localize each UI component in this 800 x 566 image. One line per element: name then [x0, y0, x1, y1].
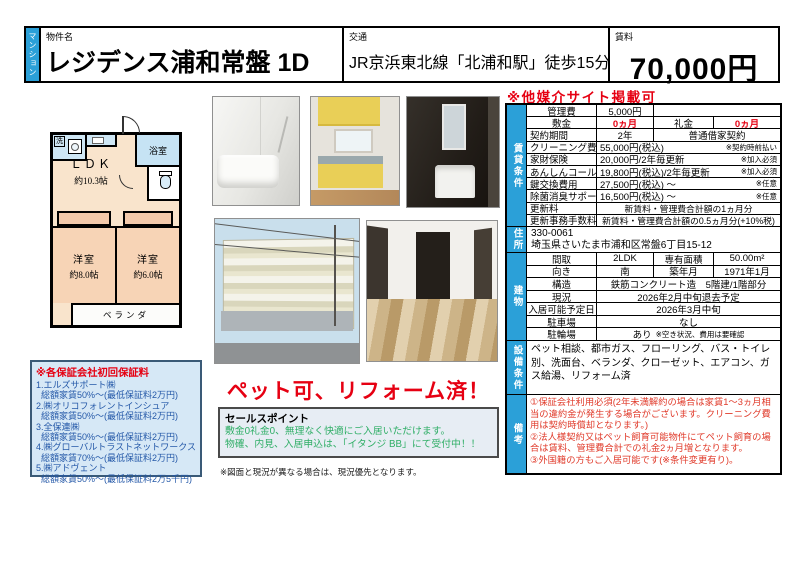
wash-label: 洗: [54, 136, 65, 147]
floorplan-kitchen-counter: [87, 135, 117, 147]
floorplan-closet-right: [123, 211, 173, 226]
row-label: クリーニング費用: [527, 142, 597, 153]
room2-size: 約6.0帖: [133, 268, 162, 281]
row-label: 駐車場: [527, 316, 597, 328]
row-value: 50.00m²: [714, 253, 780, 265]
row-value: 2LDK: [597, 253, 654, 265]
row-value: 南: [597, 266, 654, 278]
entry-door-arc-icon: [123, 116, 140, 133]
row-note: ※任意: [756, 191, 777, 202]
detail-panel: 賃貸条件 管理費 5,000円 敷金 0ヵ月 礼金 0ヵ月 契約期間 2年 普通…: [505, 103, 782, 475]
row-label: 駐輪場: [527, 328, 597, 340]
balcony-label: ベランダ: [103, 309, 149, 321]
sales-point-box: セールスポイント 敷金0礼金0、無理なく快適にご入居いただけます。 物確、内見、…: [218, 407, 499, 458]
row-label: 向き: [527, 266, 597, 278]
deposit-value: 0ヵ月: [597, 117, 654, 128]
property-name-label: 物件名: [46, 30, 337, 43]
row-value: 16,500円(税込) ～: [600, 189, 676, 203]
row-label: 除菌消臭サポート: [527, 190, 597, 201]
row-note: ※空き状況、費用は要確認: [656, 329, 745, 340]
kitchen-window: [334, 129, 373, 153]
floorplan-closet-left: [57, 211, 111, 226]
section-rental-terms: 賃貸条件 管理費 5,000円 敷金 0ヵ月 礼金 0ヵ月 契約期間 2年 普通…: [507, 105, 780, 227]
pet-ok-note: ペット可、リフォーム済！: [218, 375, 499, 405]
room1-label: 洋室: [73, 251, 95, 266]
property-name-cell: 物件名 レジデンス浦和常盤 1D: [41, 28, 344, 81]
room1-size: 約8.0帖: [69, 268, 98, 281]
ldk-size: 約10.3帖: [63, 174, 119, 187]
row-note: ※任意: [756, 178, 777, 189]
washer-drum-icon: [71, 143, 79, 151]
guarantee-company: 4.㈱グローバルトラストネットワークス: [36, 442, 196, 452]
photo-bathroom: [212, 96, 300, 206]
guarantee-company: 5.㈱アドヴェント: [36, 463, 196, 473]
row-value: 5,000円: [597, 105, 654, 116]
table-row: 更新料 新賃料・管理費合計額の1ヵ月分: [527, 203, 780, 215]
photo-washbasin: [406, 96, 500, 208]
section-remarks: 備考 ①保証会社利用必須(2年未満解約の場合は家賃1～3ヵ月相当の違約金が発生す…: [507, 395, 780, 473]
floorplan-room2: 洋室 約6.0帖: [117, 226, 179, 303]
remark-line: ①保証会社利用必須(2年未満解約の場合は家賃1～3ヵ月相当の違約金が発生する場合…: [530, 397, 777, 432]
table-row: 入居可能予定日 2026年3月中旬: [527, 303, 780, 316]
road: [215, 343, 359, 363]
interior-doorway: [416, 232, 450, 305]
row-label: 入居可能予定日: [527, 303, 597, 315]
sink-icon: [92, 137, 104, 144]
washbasin-vanity: [435, 165, 475, 198]
room2-label: 洋室: [137, 251, 159, 266]
table-row: 構造 鉄筋コンクリート造 5階建/1階部分: [527, 278, 780, 291]
guarantee-fee: 総額家賃50%～(最低保証料2万5千円): [36, 474, 196, 484]
address-text: 埼玉県さいたま市浦和区常盤6丁目15-12: [531, 240, 776, 252]
row-label: 家財保険: [527, 154, 597, 165]
rent-label: 賃料: [615, 30, 773, 43]
remarks-label: 備考: [507, 395, 527, 473]
kitchen-counter: [318, 156, 383, 164]
table-row: 管理費 5,000円: [527, 105, 780, 117]
property-name: レジデンス浦和常盤 1D: [46, 43, 337, 79]
row-label: 更新料: [527, 203, 597, 214]
row-label: 間取: [527, 253, 597, 265]
transport-cell: 交通 JR京浜東北線「北浦和駅」徒歩15分: [344, 28, 610, 81]
guarantee-company: 3.全保連㈱: [36, 422, 196, 432]
sales-point-line: 物確、内見、入居申込は、「イタンジ BB」にて受付中！！: [225, 439, 492, 452]
row-label: 現況: [527, 291, 597, 303]
equipment-text: ペット相談、都市ガス、フローリング、バス・トイレ別、洗面台、ベランダ、クローゼッ…: [527, 341, 780, 386]
row-note: ※加入必須: [741, 166, 777, 177]
shower-hose: [277, 117, 288, 153]
kitchen-floor: [311, 190, 399, 205]
entry-door-leaf: [122, 116, 124, 134]
floorplan-disclaimer: ※図面と現況が異なる場合は、現況優先となります。: [220, 466, 422, 478]
floorplan: 洗 浴室 ＬＤＫ 約10.3帖 洋室 約8.0帖 洋室 約6.0帖 ベランダ: [50, 132, 182, 328]
guarantee-fee: 総額家賃50%～(最低保証料2万円): [36, 432, 196, 442]
row-empty: [654, 105, 780, 116]
photo-room-interior: [366, 220, 498, 362]
guarantee-fee: 総額家賃50%～(最低保証料2万円): [36, 411, 196, 421]
row-label: 鍵交換費用: [527, 178, 597, 189]
washer-icon: [68, 139, 82, 154]
row-note: ※契約時前払い: [726, 142, 777, 153]
header: マンション 物件名 レジデンス浦和常盤 1D 交通 JR京浜東北線「北浦和駅」徒…: [24, 26, 780, 83]
sales-point-title: セールスポイント: [225, 411, 492, 426]
guarantee-company-box: ※各保証会社初回保証料 1.エルズサポート㈱ 総額家賃50%～(最低保証料2万円…: [30, 360, 202, 477]
row-value: 鉄筋コンクリート造 5階建/1階部分: [597, 278, 780, 290]
row-value: 2026年2月中旬退去予定: [597, 291, 780, 303]
remark-line: ②法人様契約又はペット飼育可能物件にてペット飼育の場合は賃料、管理費合計での礼金…: [530, 432, 777, 455]
row-value: なし: [597, 316, 780, 328]
property-flyer: マンション 物件名 レジデンス浦和常盤 1D 交通 JR京浜東北線「北浦和駅」徒…: [0, 0, 800, 566]
row-note: ※加入必須: [741, 154, 777, 165]
row-label: 更新事務手数料: [527, 215, 597, 226]
table-row: 更新事務手数料 新賃料・管理費合計額の0.5ヵ月分(+10%税): [527, 215, 780, 226]
row-label: 構造: [527, 278, 597, 290]
key-money-value: 0ヵ月: [714, 117, 780, 128]
table-row: 駐輪場 あり ※空き状況、費用は要確認: [527, 328, 780, 340]
row-label: 礼金: [654, 117, 714, 128]
row-value: あり: [633, 328, 652, 340]
kitchen-upper-cabinets: [318, 97, 380, 126]
photo-building-exterior: [214, 218, 360, 364]
washbasin-mirror: [442, 104, 466, 150]
interior-wood-floor: [367, 299, 497, 361]
guarantee-title: ※各保証会社初回保証料: [36, 364, 196, 379]
floorplan-balcony: ベランダ: [71, 303, 179, 325]
washbasin-wall: [488, 97, 499, 207]
row-label: あんしんコール24: [527, 166, 597, 177]
transport-label: 交通: [349, 30, 603, 43]
photo-kitchen: [310, 96, 400, 206]
interior-door-arc-icon: [119, 175, 133, 189]
building-label: 建物: [507, 253, 527, 340]
utility-pole: [334, 225, 336, 326]
floorplan-bathroom: 浴室: [135, 135, 179, 167]
row-label: 契約期間: [527, 129, 597, 140]
row-label: 築年月: [654, 266, 714, 278]
rent-value: 70,000円: [615, 44, 773, 88]
floorplan-toilet: [147, 167, 179, 201]
table-row: 間取 2LDK 専有面積 50.00m²: [527, 253, 780, 266]
guarantee-fee: 総額家賃70%～(最低保証料2万円): [36, 453, 196, 463]
table-row: 現況 2026年2月中旬退去予定: [527, 291, 780, 304]
postal-code: 330-0061: [531, 228, 776, 240]
address-label: 住所: [507, 227, 527, 252]
row-value: 普通借家契約: [654, 129, 780, 140]
section-address: 住所 330-0061 埼玉県さいたま市浦和区常盤6丁目15-12: [507, 227, 780, 253]
row-label: 管理費: [527, 105, 597, 116]
row-label: 専有面積: [654, 253, 714, 265]
row-label: 敷金: [527, 117, 597, 128]
rental-terms-label: 賃貸条件: [507, 105, 527, 226]
floorplan-ldk: ＬＤＫ 約10.3帖: [63, 155, 119, 187]
section-equipment: 設備条件 ペット相談、都市ガス、フローリング、バス・トイレ別、洗面台、ベランダ、…: [507, 341, 780, 395]
section-building: 建物 間取 2LDK 専有面積 50.00m² 向き 南 築年月 1971年1月…: [507, 253, 780, 341]
equipment-label: 設備条件: [507, 341, 527, 394]
table-row: 駐車場 なし: [527, 316, 780, 329]
table-row: 向き 南 築年月 1971年1月: [527, 266, 780, 279]
floorplan-room1: 洋室 約8.0帖: [53, 226, 117, 303]
ldk-label: ＬＤＫ: [63, 155, 119, 172]
row-value: 2026年3月中旬: [597, 303, 780, 315]
category-tag: マンション: [26, 28, 41, 81]
interior-door-right: [474, 228, 492, 309]
sales-point-line: 敷金0礼金0、無理なく快適にご入居いただけます。: [225, 426, 492, 439]
transport-value: JR京浜東北線「北浦和駅」徒歩15分: [349, 49, 603, 73]
guarantee-company: 1.エルズサポート㈱: [36, 380, 196, 390]
row-value: 2年: [597, 129, 654, 140]
row-value: 1971年1月: [714, 266, 780, 278]
table-row: 除菌消臭サポート 16,500円(税込) ～※任意: [527, 190, 780, 202]
table-row: 敷金 0ヵ月 礼金 0ヵ月: [527, 117, 780, 129]
kitchen-lower-cabinets: [318, 164, 383, 188]
remark-line: ③外国籍の方もご入居可能です(※条件変更有り)。: [530, 455, 777, 467]
bath-label: 浴室: [149, 144, 167, 157]
row-value: 新賃料・管理費合計額の0.5ヵ月分(+10%税): [597, 215, 780, 226]
bathtub: [217, 155, 279, 187]
guarantee-fee: 総額家賃50%～(最低保証料2万円): [36, 390, 196, 400]
toilet-icon: [160, 175, 171, 189]
row-value: 新賃料・管理費合計額の1ヵ月分: [597, 203, 780, 214]
rent-cell: 賃料 70,000円: [610, 28, 778, 81]
guarantee-company: 2.㈱オリコフォレントインシュア: [36, 401, 196, 411]
